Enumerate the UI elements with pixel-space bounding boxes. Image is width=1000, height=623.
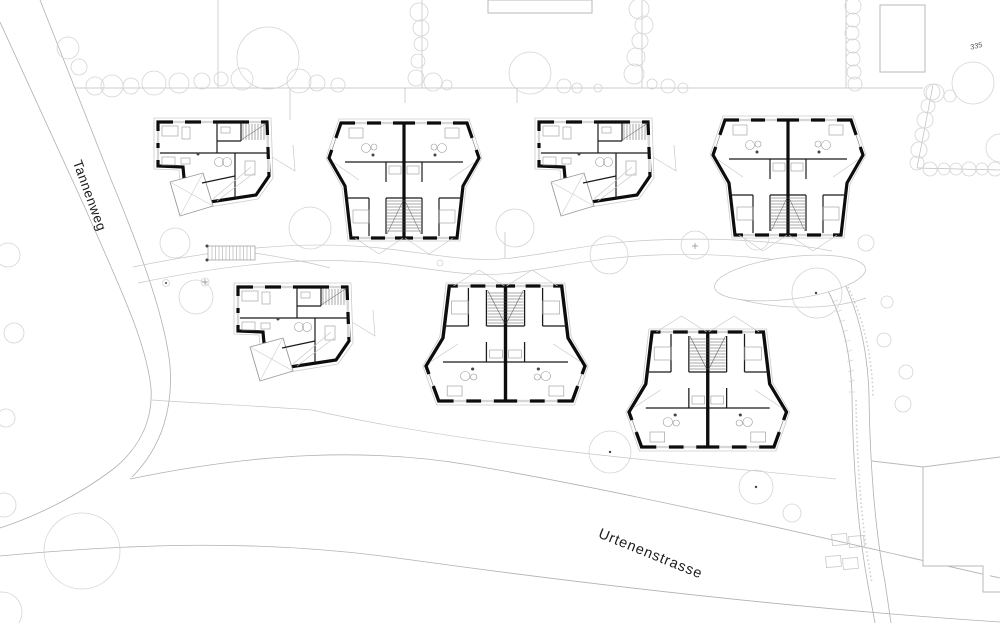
- tree-shape: [944, 90, 956, 102]
- hatch-shape: [849, 380, 855, 382]
- layer-lawn-oval: [712, 248, 868, 308]
- dot-shape: [434, 154, 437, 157]
- dot-shape: [818, 151, 821, 154]
- tree-shape: [635, 16, 653, 34]
- roofd-shape: [272, 145, 295, 171]
- tree-shape: [437, 260, 443, 266]
- tree-shape: [142, 71, 166, 95]
- dot-shape: [756, 151, 759, 154]
- house-3: [535, 118, 676, 216]
- roofd-shape: [653, 145, 676, 171]
- tree-shape: [194, 73, 210, 89]
- dot-shape: [277, 318, 280, 321]
- nbr-shape: [923, 467, 1000, 592]
- tree-shape: [496, 209, 534, 247]
- road-shape: [0, 22, 151, 528]
- tree-shape: [408, 70, 424, 86]
- dot-shape: [815, 292, 817, 294]
- path-shape: [152, 400, 312, 410]
- dot-shape: [609, 451, 611, 453]
- tree-shape: [413, 20, 429, 36]
- dot-shape: [674, 414, 677, 417]
- tree-shape: [557, 79, 571, 93]
- tree-shape: [0, 409, 15, 427]
- tree-shape: [414, 37, 428, 51]
- hatch-shape: [846, 350, 852, 352]
- tree-shape: [783, 504, 801, 522]
- tree-shape: [590, 236, 628, 274]
- tree-shape: [0, 243, 20, 267]
- tree-shape: [988, 162, 1000, 176]
- layer-outdoor-stair-ramp: [208, 246, 255, 260]
- dot-shape: [578, 153, 581, 156]
- dot-shape: [206, 259, 209, 262]
- dot-shape: [165, 282, 167, 284]
- tree-shape: [0, 493, 16, 517]
- tree-shape: [624, 64, 644, 84]
- house-4: [710, 116, 866, 251]
- nbr-shape: [488, 0, 592, 13]
- tree-shape: [986, 134, 1000, 162]
- tree-shape: [57, 37, 79, 59]
- dot-shape: [739, 414, 742, 417]
- tree-shape: [911, 142, 927, 158]
- tree-shape: [881, 296, 893, 308]
- oval-shape: [712, 248, 868, 308]
- tree-shape: [309, 75, 325, 91]
- tree-shape: [877, 333, 891, 347]
- tree-shape: [231, 68, 253, 90]
- tree-shape: [410, 3, 428, 21]
- hatch-shape: [848, 370, 854, 372]
- roofd-shape: [352, 310, 375, 336]
- hatchd-shape: [848, 287, 873, 396]
- dot-shape: [372, 154, 375, 157]
- dot-shape: [537, 368, 540, 371]
- park-shape: [826, 555, 842, 567]
- layer-lane-hatching-dashed: [848, 287, 873, 583]
- tree-shape: [846, 52, 860, 66]
- tree-shape: [237, 27, 299, 89]
- site-shape: [917, 168, 1000, 170]
- park-shape: [832, 533, 848, 545]
- road-shape: [130, 455, 1000, 578]
- tree-shape: [845, 26, 859, 40]
- tree-shape: [899, 365, 913, 379]
- layer-parking-stalls: [826, 533, 865, 569]
- tree-shape: [846, 13, 860, 27]
- tree-shape: [169, 73, 189, 93]
- tree-shape: [923, 162, 937, 176]
- tree-shape: [71, 59, 87, 75]
- park-shape: [843, 557, 859, 569]
- house-5: [234, 283, 375, 381]
- ramp-shape: [208, 246, 255, 260]
- site-plan-drawing: [0, 0, 1000, 623]
- nbr-shape: [880, 5, 925, 72]
- tree-shape: [289, 207, 331, 249]
- tree-shape: [4, 323, 24, 343]
- tree-shape: [331, 78, 345, 92]
- house-7: [626, 316, 790, 451]
- hatch-shape: [847, 360, 853, 362]
- tree-shape: [952, 62, 994, 104]
- tree-shape: [442, 80, 452, 90]
- tree-shape: [287, 69, 311, 93]
- tree-shape: [647, 79, 657, 89]
- tree-shape: [846, 39, 860, 53]
- tree-shape: [661, 79, 675, 93]
- tree-shape: [160, 228, 190, 258]
- tree-shape: [123, 78, 139, 94]
- tree-shape: [0, 592, 22, 623]
- house-2: [326, 119, 482, 254]
- tree-shape: [858, 235, 874, 251]
- dot-shape: [471, 368, 474, 371]
- tree-shape: [915, 128, 929, 142]
- house-1: [154, 118, 295, 216]
- hatch-shape: [844, 340, 850, 342]
- dot-shape: [206, 245, 209, 248]
- dot-shape: [755, 486, 757, 488]
- tree-shape: [895, 396, 911, 412]
- site-plan: Tannenweg Urtenenstrasse 335: [0, 0, 1000, 623]
- dot-shape: [197, 153, 200, 156]
- house-6: [423, 270, 588, 405]
- tree-shape: [411, 54, 425, 68]
- nbr-shape: [872, 457, 1000, 467]
- road-shape: [0, 545, 1000, 622]
- mark-shape: [692, 243, 698, 249]
- tree-shape: [976, 163, 988, 175]
- road-shape: [826, 287, 875, 623]
- tree-shape: [845, 0, 861, 14]
- tree-shape: [632, 33, 648, 49]
- tree-shape: [214, 72, 228, 86]
